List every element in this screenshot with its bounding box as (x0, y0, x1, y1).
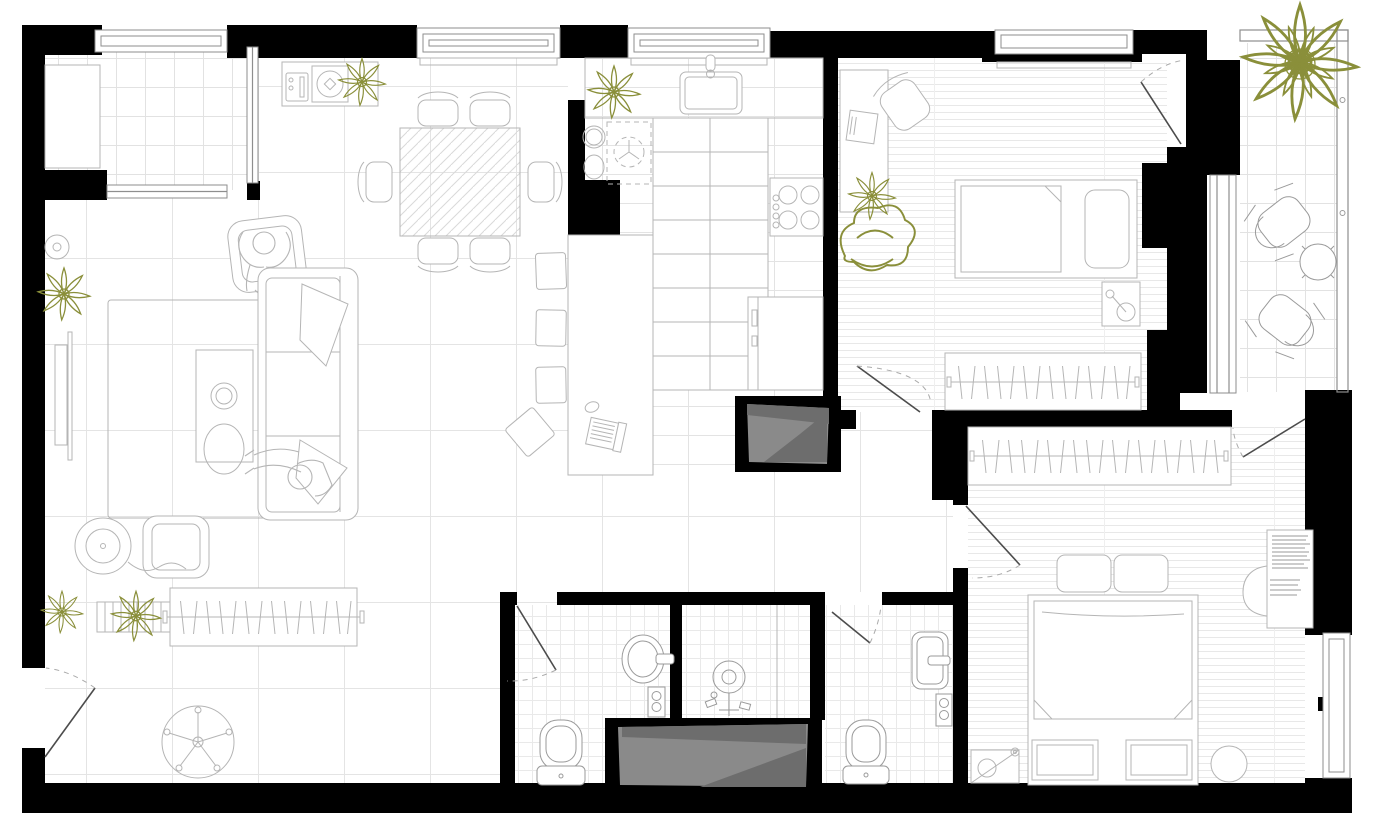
dining-chair (470, 100, 510, 126)
wall-controls (648, 687, 665, 717)
single-bed (955, 180, 1137, 278)
floor-plan-drawing: Apartment floor plan — top-down architec… (0, 0, 1374, 832)
dining-table (400, 128, 520, 236)
bedroom-one-window (995, 30, 1133, 54)
dining-chair (528, 162, 554, 202)
tap (928, 656, 950, 665)
wardrobe-two (968, 427, 1231, 485)
duvet (961, 186, 1061, 272)
pillow (1057, 555, 1111, 592)
nightstand (1102, 282, 1140, 326)
dining-chair (470, 238, 510, 264)
clothes-rail (163, 588, 364, 646)
wall-controls (936, 694, 952, 726)
coffee-table (196, 350, 253, 474)
loggia-sill (107, 185, 227, 198)
sofa (258, 268, 358, 520)
wardrobe-one (945, 353, 1141, 410)
lounge-chair (143, 516, 209, 578)
balcony-narrow-glazing (1210, 175, 1236, 393)
desk-laptop (846, 110, 878, 144)
refrigerator (748, 297, 823, 390)
loggia-cabinet (45, 65, 100, 168)
toilet (843, 720, 889, 784)
loggia-top-window (95, 30, 227, 52)
winter-garden-furniture (45, 65, 100, 168)
duvet (1034, 601, 1192, 719)
bar-stool (535, 252, 566, 289)
foot-bench (1126, 740, 1192, 780)
kitchen-shaft (735, 396, 841, 472)
bathroom-shaft (605, 718, 822, 790)
dining-chair (418, 100, 458, 126)
washbasin (912, 632, 950, 689)
tap (706, 55, 715, 71)
dining-chair (366, 162, 392, 202)
dining-window (417, 28, 560, 58)
floor-lamp (971, 748, 1019, 783)
bistro-table (1300, 244, 1336, 280)
kitchen-window (628, 28, 770, 58)
loggia-inner-glazing (247, 47, 258, 183)
shower-room-floor (682, 605, 810, 718)
bar-stool (536, 367, 567, 404)
bar-stool (536, 310, 567, 347)
pillow (1114, 555, 1168, 592)
pouf (1211, 746, 1247, 782)
pillow (1085, 190, 1129, 268)
dining-chair (418, 238, 458, 264)
leaning-mirror (55, 332, 72, 460)
toilet (537, 720, 585, 785)
tap (656, 654, 674, 664)
foot-bench (1032, 740, 1098, 780)
bedroom-two-side-window (1323, 633, 1350, 778)
floor-plan-page: Apartment floor plan — top-down architec… (0, 0, 1374, 832)
cooktop (770, 178, 823, 236)
